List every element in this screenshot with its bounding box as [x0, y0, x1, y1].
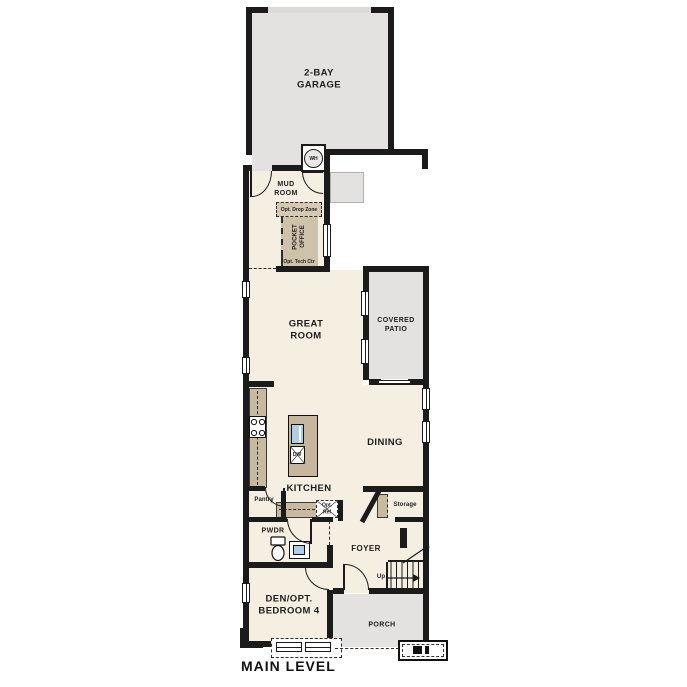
patio-wall-top — [363, 266, 429, 272]
counter-dash-line — [257, 391, 258, 485]
room-label-dining: DINING — [367, 437, 403, 449]
room-label-foyer: FOYER — [351, 544, 381, 554]
room-label-pocket-office: POCKET OFFICE — [293, 224, 308, 250]
room-label-garage: 2-BAY GARAGE — [297, 68, 341, 93]
office-wall-bottom — [276, 266, 330, 272]
foyer-wall-left — [327, 545, 333, 562]
garage-wall-top-right — [371, 7, 394, 13]
garage-door — [268, 7, 371, 13]
porch-steps-inner — [402, 644, 444, 657]
ref-wall-stub — [338, 500, 343, 521]
water-heater-label: WH — [309, 156, 317, 162]
stair-edge-top — [388, 560, 424, 562]
floor-plan: WH 2-BAY GA — [0, 0, 687, 687]
room-label-covered-patio: COVERED PATIO — [377, 316, 414, 334]
range-stove — [249, 416, 266, 438]
garage-wall-top-left — [246, 7, 268, 13]
room-label-storage: Storage — [393, 502, 416, 510]
kitchen-sink — [291, 424, 304, 444]
stair-wall — [400, 528, 407, 548]
den-corner-b — [240, 641, 263, 648]
dining-window-1 — [422, 388, 430, 410]
dining-window-2 — [422, 421, 430, 443]
label-opt-ref: Opt. Ref — [322, 503, 332, 516]
storage-wall-top — [363, 486, 423, 492]
garage-wall-left — [246, 7, 252, 155]
porch-edge-dash — [335, 648, 399, 649]
room-label-den: DEN/OPT. BEDROOM 4 — [258, 594, 319, 619]
room-label-great-room: GREAT ROOM — [289, 319, 324, 344]
den-bay-window-1 — [276, 642, 302, 652]
pocket-office-window — [323, 224, 331, 257]
label-opt-tech-ctr: Opt. Tech Ctr — [283, 259, 314, 266]
water-heater-badge: WH — [304, 149, 323, 168]
patio-window-2 — [361, 339, 369, 364]
yard-wall-stub — [422, 155, 428, 169]
porch-wall-right — [423, 593, 429, 647]
room-label-kitchen: KITCHEN — [286, 483, 331, 495]
storage-wall-bottom — [395, 517, 423, 522]
exterior-wall-left — [243, 165, 249, 647]
patio-door — [378, 380, 411, 385]
pwdr-sink — [293, 545, 305, 555]
label-opt-drop-zone: Opt. Drop Zone — [281, 207, 317, 214]
room-label-pwdr: PWDR — [262, 526, 285, 535]
plan-title: MAIN LEVEL — [241, 658, 336, 674]
pwdr-wall-top-a — [246, 517, 287, 522]
storage-cabinet — [377, 494, 388, 518]
kitchen-wall-stub — [246, 381, 274, 387]
label-stairs-up: Up — [377, 574, 385, 582]
patio-window-1 — [361, 291, 369, 316]
porch-wall-b — [369, 588, 423, 594]
den-bay-window-2 — [305, 642, 331, 652]
room-label-mud-room: MUD ROOM — [274, 180, 297, 198]
side-landing — [330, 172, 364, 203]
foyer-opening-dash — [329, 521, 330, 545]
garage-wall-right — [388, 7, 394, 155]
great-room-window-1 — [242, 281, 250, 298]
kitchen-counter-left — [249, 388, 267, 488]
pantry-wall-top — [246, 486, 265, 491]
label-dishwasher: DW — [293, 452, 301, 459]
room-label-pantry: Pantry — [254, 497, 273, 505]
sink-divider — [299, 426, 301, 442]
garage-wall-bottom-right — [322, 149, 394, 155]
den-window-left — [242, 583, 250, 603]
great-room-opening-dash — [249, 268, 276, 269]
porch-steps-mark-2 — [425, 646, 429, 654]
room-label-porch: PORCH — [368, 620, 395, 629]
porch-steps-mark-1 — [413, 646, 422, 654]
great-room-window-2 — [242, 357, 250, 374]
